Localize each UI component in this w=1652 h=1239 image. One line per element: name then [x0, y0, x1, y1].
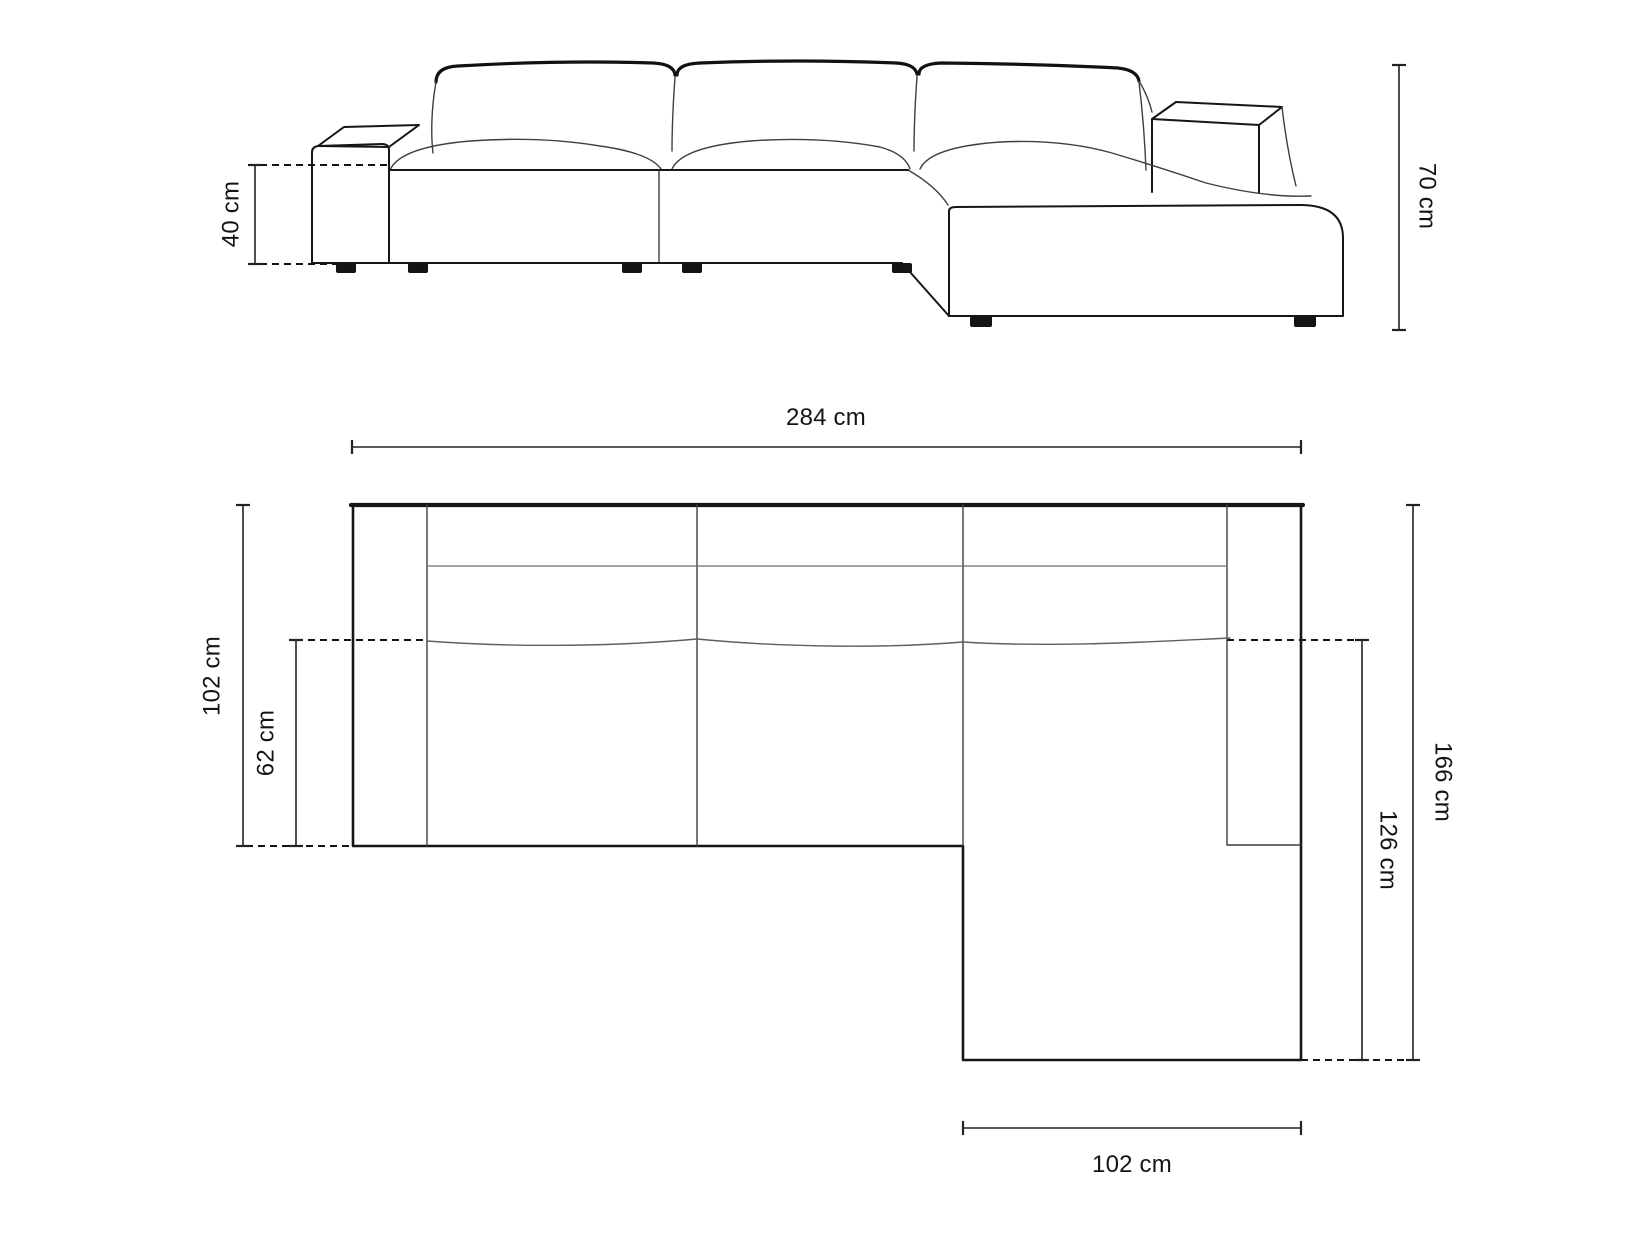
dim-chaise-depth: 126 cm [1355, 640, 1402, 1060]
plan-chaise-width-label: 102 cm [1092, 1151, 1172, 1178]
plan-body-depth-label: 102 cm [199, 636, 226, 716]
plan-seat-depth-label: 62 cm [253, 710, 280, 776]
seat-cushions-drawing [390, 139, 1311, 205]
plan-overall-depth-label: 166 cm [1430, 742, 1457, 822]
dim-seat-height: 40 cm [218, 165, 392, 264]
dim-overall-width: 284 cm [352, 404, 1301, 454]
top-plan-view: 284 cm 102 cm 62 cm 166 cm 1 [199, 404, 1457, 1178]
front-elevation-view: 40 cm 70 cm [218, 61, 1441, 330]
dim-body-depth: 102 cm [199, 505, 251, 846]
dim-seat-depth: 62 cm [253, 640, 304, 846]
back-cushions-drawing [432, 61, 1152, 170]
sofa-legs [336, 263, 1316, 327]
dim-overall-depth: 166 cm [1406, 505, 1457, 1060]
plan-dashed-extensions [246, 640, 1413, 1060]
sofa-dimension-diagram: 40 cm 70 cm [0, 0, 1652, 1239]
plan-interior-lines [427, 505, 1301, 846]
plan-overall-width-label: 284 cm [786, 404, 866, 431]
elevation-overall-height-label: 70 cm [1414, 163, 1441, 229]
diagram-canvas: 40 cm 70 cm [0, 0, 1652, 1239]
base-and-chaise-drawing [312, 170, 1343, 316]
left-armrest-drawing [312, 125, 419, 263]
dim-chaise-width: 102 cm [963, 1121, 1301, 1178]
dim-overall-height: 70 cm [1392, 65, 1441, 330]
plan-outline [351, 505, 1303, 1060]
elevation-seat-height-label: 40 cm [218, 181, 245, 247]
plan-chaise-depth-label: 126 cm [1375, 810, 1402, 890]
right-armrest-drawing [1152, 102, 1296, 193]
